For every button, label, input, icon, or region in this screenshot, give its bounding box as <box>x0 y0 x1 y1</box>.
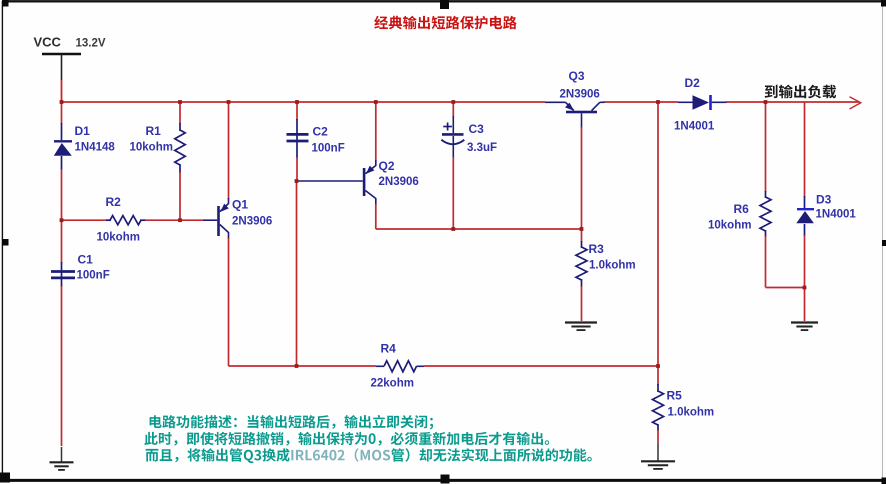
svg-text:C3: C3 <box>469 122 485 136</box>
svg-text:R4: R4 <box>381 342 397 356</box>
svg-text:22kohm: 22kohm <box>371 378 414 390</box>
svg-text:Q3: Q3 <box>569 69 585 83</box>
svg-text:Q2: Q2 <box>379 159 395 173</box>
svg-text:R6: R6 <box>734 202 750 216</box>
svg-text:1N4001: 1N4001 <box>674 121 715 133</box>
svg-text:1N4001: 1N4001 <box>816 209 857 221</box>
svg-text:R5: R5 <box>667 389 683 403</box>
svg-text:13.2V: 13.2V <box>76 38 106 50</box>
svg-text:D3: D3 <box>816 193 832 207</box>
svg-text:10kohm: 10kohm <box>130 142 173 154</box>
svg-text:D2: D2 <box>685 76 701 90</box>
svg-text:100nF: 100nF <box>312 143 345 155</box>
svg-text:VCC: VCC <box>34 35 62 50</box>
svg-text:R2: R2 <box>106 195 122 209</box>
svg-text:R1: R1 <box>146 124 162 138</box>
svg-text:10kohm: 10kohm <box>97 232 140 244</box>
svg-text:100nF: 100nF <box>77 270 110 282</box>
svg-text:2N3906: 2N3906 <box>560 89 600 101</box>
svg-text:1.0kohm: 1.0kohm <box>668 407 715 419</box>
svg-text:C2: C2 <box>313 125 329 139</box>
svg-text:2N3906: 2N3906 <box>232 216 272 228</box>
svg-text:10kohm: 10kohm <box>708 220 751 232</box>
svg-text:2N3906: 2N3906 <box>379 176 419 188</box>
svg-text:D1: D1 <box>75 124 91 138</box>
svg-text:1.0kohm: 1.0kohm <box>589 260 636 272</box>
svg-text:C1: C1 <box>78 253 94 267</box>
svg-text:3.3uF: 3.3uF <box>467 142 497 154</box>
svg-text:R3: R3 <box>589 242 605 256</box>
svg-text:1N4148: 1N4148 <box>75 142 116 154</box>
svg-text:Q1: Q1 <box>232 198 248 212</box>
